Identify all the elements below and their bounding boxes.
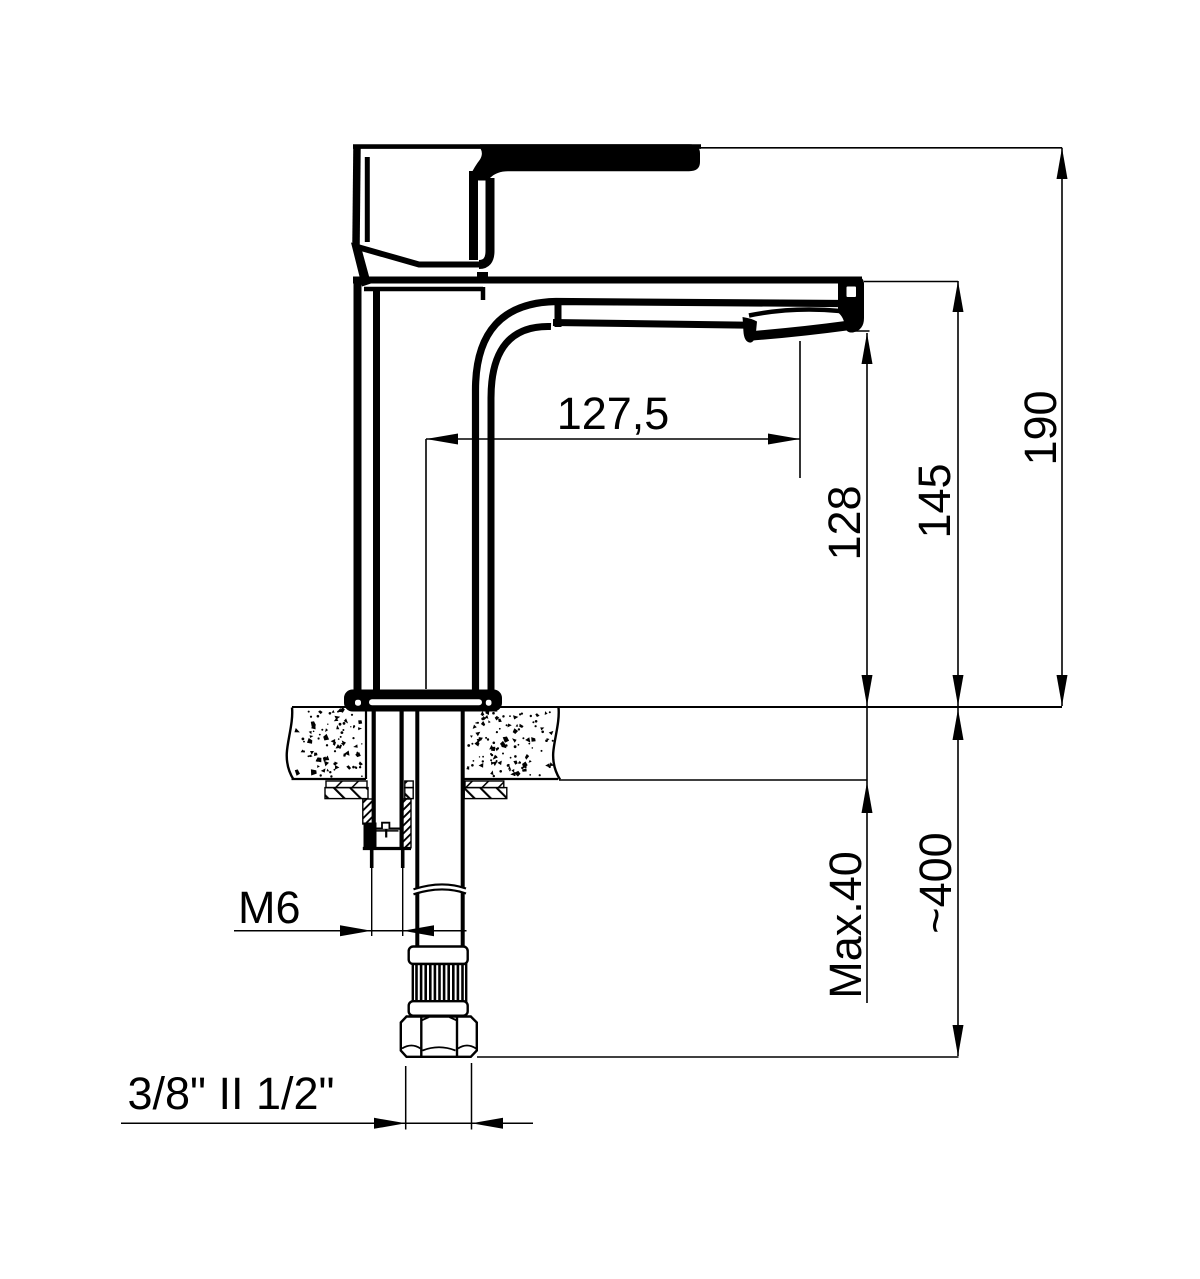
svg-text:~400: ~400: [910, 832, 961, 933]
svg-text:190: 190: [1015, 390, 1066, 465]
svg-text:127,5: 127,5: [557, 388, 670, 439]
svg-text:Max.40: Max.40: [820, 851, 871, 999]
svg-text:M6: M6: [238, 882, 301, 933]
svg-text:128: 128: [819, 485, 870, 560]
svg-text:3/8" II 1/2": 3/8" II 1/2": [127, 1068, 334, 1119]
svg-text:145: 145: [909, 463, 960, 538]
